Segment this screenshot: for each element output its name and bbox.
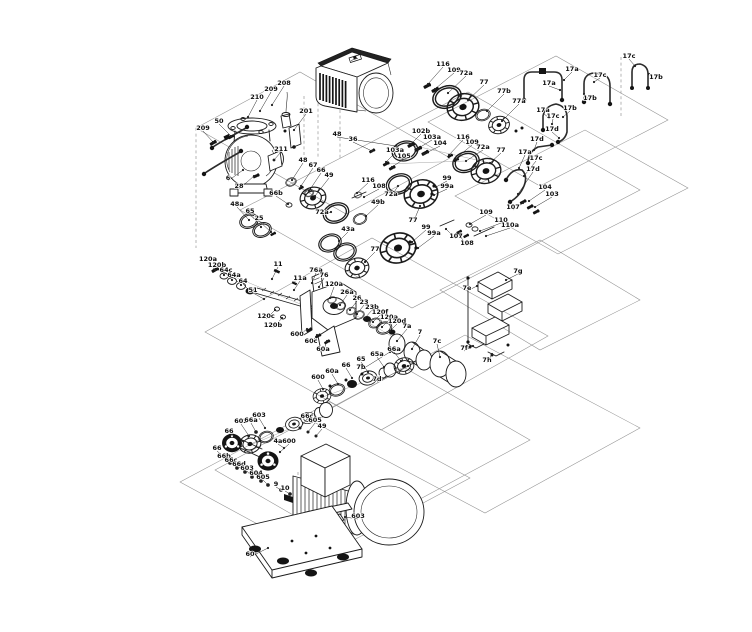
part-label: 11 xyxy=(273,260,283,268)
part-label: 11a xyxy=(293,274,306,282)
part-callout: 7g xyxy=(505,267,523,281)
part-label: 104 xyxy=(433,139,447,147)
part-label: 60a xyxy=(316,345,329,353)
part-label: 60c xyxy=(305,337,318,345)
part-callout: 17b xyxy=(583,93,597,102)
part-label: 72a xyxy=(476,143,489,151)
part-callout: 60c xyxy=(305,334,319,345)
part-callout: 49 xyxy=(315,422,327,437)
part-label: 77 xyxy=(408,216,417,224)
part-label: 48a xyxy=(230,200,243,208)
part-label: 605 xyxy=(256,473,270,481)
part-callout: 60a xyxy=(325,367,339,385)
diagram-canvas: 20950210209208201211628483611610972a7777… xyxy=(0,0,752,632)
part-label: 7c xyxy=(433,337,442,345)
part-label: 43a xyxy=(341,225,354,233)
part-label: 65 xyxy=(356,355,366,363)
part-label: 17c xyxy=(547,112,560,120)
part-label: 600 xyxy=(311,373,325,381)
part-label: 17d xyxy=(526,165,540,173)
part-label: 17b xyxy=(649,73,663,81)
part-label: 72a xyxy=(459,69,472,77)
part-label: 209 xyxy=(196,124,210,132)
part-callout: 36 xyxy=(348,135,373,152)
part-callout: 104 xyxy=(423,139,447,155)
part-label: 72a xyxy=(384,190,397,198)
part-label: 600 xyxy=(282,437,296,445)
part-label: 6 xyxy=(226,174,231,182)
part-label: 17c xyxy=(623,52,636,60)
part-callout: 48 xyxy=(332,130,397,147)
part-callout: 77a xyxy=(501,97,526,122)
part-callout: 51 xyxy=(248,286,265,300)
part-label: 17d xyxy=(530,135,544,143)
part-callout: 49b xyxy=(365,198,385,217)
part-label: 4a xyxy=(274,437,283,445)
part-label: 7h xyxy=(482,356,492,364)
part-label: 99 xyxy=(442,174,452,182)
part-label: 17a xyxy=(565,65,578,73)
part-label: 17b xyxy=(563,104,577,112)
part-callout: 103 xyxy=(534,190,559,208)
part-callout: 66 xyxy=(308,166,326,192)
part-label: 99a xyxy=(427,229,440,237)
part-callout: 17b xyxy=(648,73,663,81)
part-label: 28 xyxy=(234,182,244,190)
part-callout: 120c xyxy=(257,309,276,320)
part-label: 17b xyxy=(583,94,597,102)
part-label: 66 xyxy=(341,361,351,369)
part-callout: 7e xyxy=(463,284,479,292)
part-callout: 77b xyxy=(486,87,511,112)
part-label: 66a xyxy=(244,416,257,424)
part-label: 7e xyxy=(463,284,473,292)
part-label: 66 xyxy=(224,427,234,435)
part-callout: 17c xyxy=(547,112,560,125)
part-label: 48 xyxy=(298,156,308,164)
part-label: 17c xyxy=(594,71,607,79)
part-label: 66a xyxy=(387,345,400,353)
part-callout: 17d xyxy=(530,135,544,151)
part-callout: 109 xyxy=(434,66,461,90)
part-label: 7 xyxy=(418,328,423,336)
part-label: 211 xyxy=(274,145,288,153)
part-label: 51 xyxy=(248,286,258,294)
part-callout: 109 xyxy=(469,208,493,225)
part-label: 7g xyxy=(513,267,523,275)
part-label: 7f xyxy=(460,344,468,352)
part-label: 108 xyxy=(460,239,474,247)
part-callout: 605 xyxy=(256,473,270,486)
part-label: 120b xyxy=(264,321,283,329)
part-label: 210 xyxy=(250,93,264,101)
part-callout: 600 xyxy=(311,373,325,390)
part-label: 600 xyxy=(290,330,304,338)
exploded-parts-diagram: 20950210209208201211628483611610972a7777… xyxy=(0,0,752,632)
part-label: 99a xyxy=(440,182,453,190)
part-callout: 66 xyxy=(341,361,353,379)
part-label: 108 xyxy=(372,182,386,190)
part-label: 17d xyxy=(545,125,559,133)
part-label: 49b xyxy=(371,198,385,206)
part-label: 60 xyxy=(245,550,255,558)
part-label: 77 xyxy=(479,78,488,86)
part-label: 107 xyxy=(506,203,520,211)
part-label: 110a xyxy=(501,221,519,229)
part-label: 10 xyxy=(280,484,290,492)
part-label: 49 xyxy=(317,422,327,430)
part-label: 77a xyxy=(512,97,525,105)
part-label: 72a xyxy=(315,208,328,216)
part-label: 120c xyxy=(257,312,275,320)
drive-head xyxy=(316,48,393,113)
part-callout: 43a xyxy=(338,225,355,242)
part-label: 50 xyxy=(214,117,224,125)
part-callout: 201 xyxy=(293,107,313,131)
part-callout: 99a xyxy=(433,182,454,196)
part-label: 109 xyxy=(479,208,493,216)
part-label: 209 xyxy=(264,85,278,93)
part-callout: 600 xyxy=(279,437,296,453)
guard-brackets xyxy=(466,272,522,357)
part-callout: 17c xyxy=(623,52,637,67)
part-callout: 17a xyxy=(563,65,579,81)
part-label: 17a xyxy=(542,79,555,87)
part-label: 105 xyxy=(397,152,411,160)
part-label: 66b xyxy=(269,189,283,197)
part-callout: 66b xyxy=(269,189,289,205)
part-callout: 7h xyxy=(482,353,493,364)
part-label: 7d xyxy=(372,375,382,383)
part-label: 77 xyxy=(496,146,505,154)
part-label: 36 xyxy=(348,135,358,143)
part-label: 65a xyxy=(370,350,383,358)
part-label: 60a xyxy=(325,367,338,375)
part-callout: 99a xyxy=(417,229,441,249)
part-callout: 17a xyxy=(542,79,561,91)
part-callout: 67 xyxy=(300,161,318,187)
part-callout: 210 xyxy=(247,93,264,118)
part-label: 64 xyxy=(238,277,248,285)
part-label: 201 xyxy=(299,107,313,115)
part-callout: 209 xyxy=(196,124,214,143)
part-callout: 10 xyxy=(280,484,291,495)
part-label: 25 xyxy=(254,214,264,222)
part-label: 77b xyxy=(497,87,511,95)
part-label: 208 xyxy=(277,79,291,87)
part-callout: 65a xyxy=(370,350,385,368)
part-callout: 49 xyxy=(314,171,334,197)
part-callout: 48 xyxy=(291,156,308,181)
part-label: 7a xyxy=(403,322,412,330)
part-label: 48 xyxy=(332,130,342,138)
part-label: 120a xyxy=(325,280,343,288)
part-label: 603 xyxy=(351,512,365,520)
part-label: 17c xyxy=(530,154,543,162)
part-callout: 7f xyxy=(460,344,474,352)
part-callout: 72a xyxy=(315,208,332,216)
part-label: 9 xyxy=(274,480,279,488)
part-label: 77 xyxy=(370,245,379,253)
part-label: 76 xyxy=(319,271,329,279)
part-label: 103 xyxy=(545,190,559,198)
part-label: 49 xyxy=(324,171,334,179)
part-label: 66 xyxy=(212,444,222,452)
part-callout: 17b xyxy=(562,104,577,118)
